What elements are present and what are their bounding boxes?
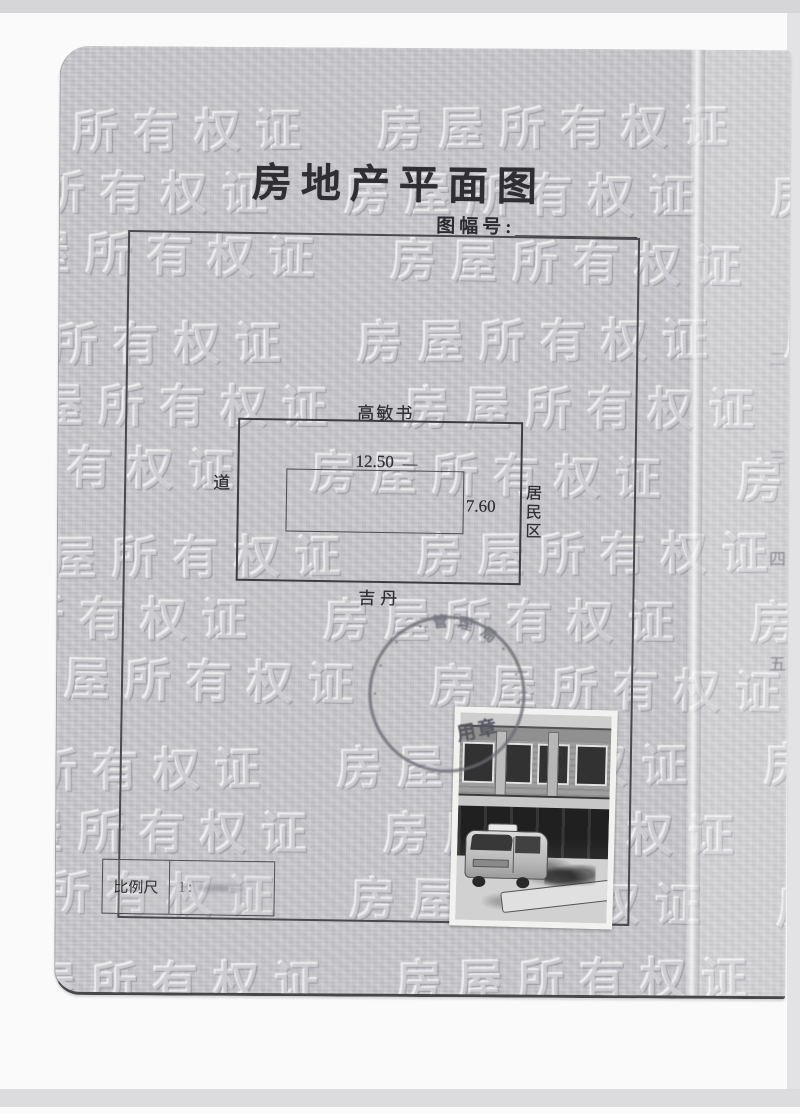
- dimension-width-label: 12.50: [355, 452, 394, 473]
- neighbor-label-north: 高敏书: [357, 399, 414, 425]
- neighbor-label-west: 道: [213, 468, 230, 493]
- margin-numeral: 四: [769, 545, 786, 570]
- photo-pillar: [546, 731, 559, 804]
- building-footprint: [285, 469, 464, 535]
- scale-value-cell: 1:: [169, 861, 274, 916]
- margin-numeral: 三: [769, 444, 786, 469]
- margin-numeral: 二: [769, 345, 786, 370]
- dimension-depth-label: 7.60: [466, 496, 496, 516]
- printed-content-layer: 房地产平面图 图幅号: 高敏书 12.50 7.60 道 居民区 吉丹 比例尺 …: [0, 0, 800, 1114]
- photo-debris: [544, 864, 596, 890]
- official-seal-icon: · · · ·管理局· · · ·: [354, 602, 539, 787]
- scale-value: 1:: [178, 878, 195, 896]
- photo-van-windshield: [470, 834, 513, 851]
- scale-label: 比例尺: [113, 876, 158, 898]
- photo-van-grille: [472, 859, 508, 868]
- photo-minivan: [464, 822, 547, 886]
- neighbor-label-east: 居民区: [518, 484, 543, 541]
- photo-window: [575, 744, 608, 786]
- scale-faint-handwriting: [198, 881, 244, 896]
- scale-box: 比例尺 1:: [101, 859, 275, 917]
- page-title: 房地产平面图: [252, 150, 573, 213]
- scale-label-cell: 比例尺: [102, 860, 170, 914]
- photo-van-side-window: [515, 836, 540, 854]
- dimension-tick: [402, 464, 417, 465]
- margin-numeral: 五: [769, 650, 786, 675]
